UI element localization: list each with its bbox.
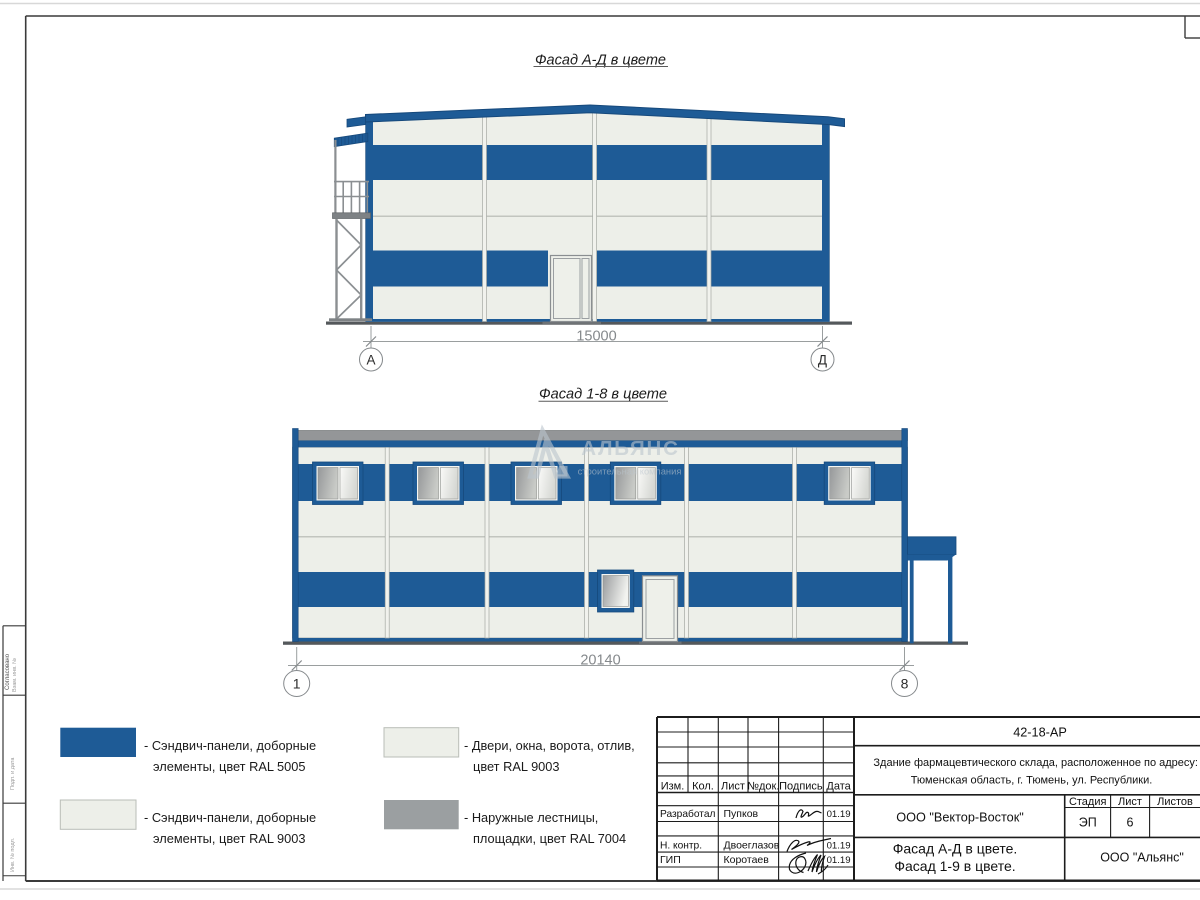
svg-text:- Сэндвич-панели, доборные: - Сэндвич-панели, доборные (144, 810, 316, 825)
svg-text:Разработал: Разработал (660, 808, 716, 820)
svg-text:Фасад 1-8 в цвете: Фасад 1-8 в цвете (539, 386, 667, 403)
svg-text:строительная компания: строительная компания (578, 466, 682, 477)
svg-text:элементы, цвет RAL 5005: элементы, цвет RAL 5005 (153, 759, 306, 774)
svg-text:Лист: Лист (1118, 796, 1142, 808)
svg-text:6: 6 (1127, 816, 1134, 830)
svg-text:цвет RAL 9003: цвет RAL 9003 (473, 759, 560, 774)
svg-text:Изм.: Изм. (661, 781, 685, 793)
svg-text:Подпись: Подпись (779, 781, 823, 793)
svg-text:№док.: №док. (747, 781, 779, 793)
svg-text:01.19: 01.19 (827, 840, 851, 851)
svg-text:15000: 15000 (576, 329, 616, 345)
svg-text:Здание фармацевтического склад: Здание фармацевтического склада, располо… (873, 757, 1198, 769)
svg-text:42-18-АР: 42-18-АР (1013, 725, 1067, 739)
svg-text:1: 1 (293, 676, 301, 692)
svg-text:элементы, цвет RAL 9003: элементы, цвет RAL 9003 (153, 831, 306, 846)
svg-text:Фасад А-Д в цвете.: Фасад А-Д в цвете. (893, 841, 1018, 857)
svg-text:Подп. и дата: Подп. и дата (10, 757, 16, 790)
svg-text:Согласовано: Согласовано (5, 653, 11, 690)
svg-text:площадки, цвет RAL 7004: площадки, цвет RAL 7004 (473, 831, 626, 846)
svg-text:Лист: Лист (721, 781, 745, 793)
svg-text:Фасад 1-9 в цвете.: Фасад 1-9 в цвете. (894, 858, 1015, 874)
svg-text:8: 8 (901, 676, 909, 692)
svg-text:Н. контр.: Н. контр. (660, 840, 702, 851)
svg-text:АЛЬЯНС: АЛЬЯНС (581, 437, 680, 460)
svg-text:Стадия: Стадия (1069, 796, 1107, 808)
svg-text:01.19: 01.19 (827, 809, 851, 820)
svg-text:ГИП: ГИП (660, 854, 681, 866)
svg-text:- Наружные лестницы,: - Наружные лестницы, (464, 810, 598, 825)
svg-text:Двоеглазов: Двоеглазов (724, 839, 780, 851)
svg-text:Фасад А-Д в цвете: Фасад А-Д в цвете (535, 51, 666, 68)
svg-text:01.19: 01.19 (827, 855, 851, 866)
svg-text:Взам. инв. №: Взам. инв. № (12, 658, 18, 692)
svg-text:Пупков: Пупков (724, 808, 759, 820)
svg-text:Тюменская область, г. Тюмень,: Тюменская область, г. Тюмень, ул. Респуб… (911, 775, 1153, 787)
svg-text:20140: 20140 (580, 652, 620, 668)
svg-text:- Сэндвич-панели, доборные: - Сэндвич-панели, доборные (144, 738, 316, 753)
svg-text:ООО "Вектор-Восток": ООО "Вектор-Восток" (896, 811, 1024, 825)
svg-text:ООО "Альянс": ООО "Альянс" (1100, 851, 1184, 865)
svg-text:- Двери, окна, ворота, отлив,: - Двери, окна, ворота, отлив, (464, 738, 635, 753)
svg-text:ЭП: ЭП (1079, 816, 1097, 830)
svg-text:Коротаев: Коротаев (724, 854, 770, 866)
svg-text:Инв. № подл.: Инв. № подл. (10, 837, 16, 872)
svg-text:Дата: Дата (826, 781, 851, 793)
svg-text:Кол.: Кол. (692, 781, 714, 793)
svg-text:Д: Д (818, 353, 827, 368)
svg-text:А: А (366, 353, 375, 368)
svg-text:Листов: Листов (1157, 796, 1193, 808)
